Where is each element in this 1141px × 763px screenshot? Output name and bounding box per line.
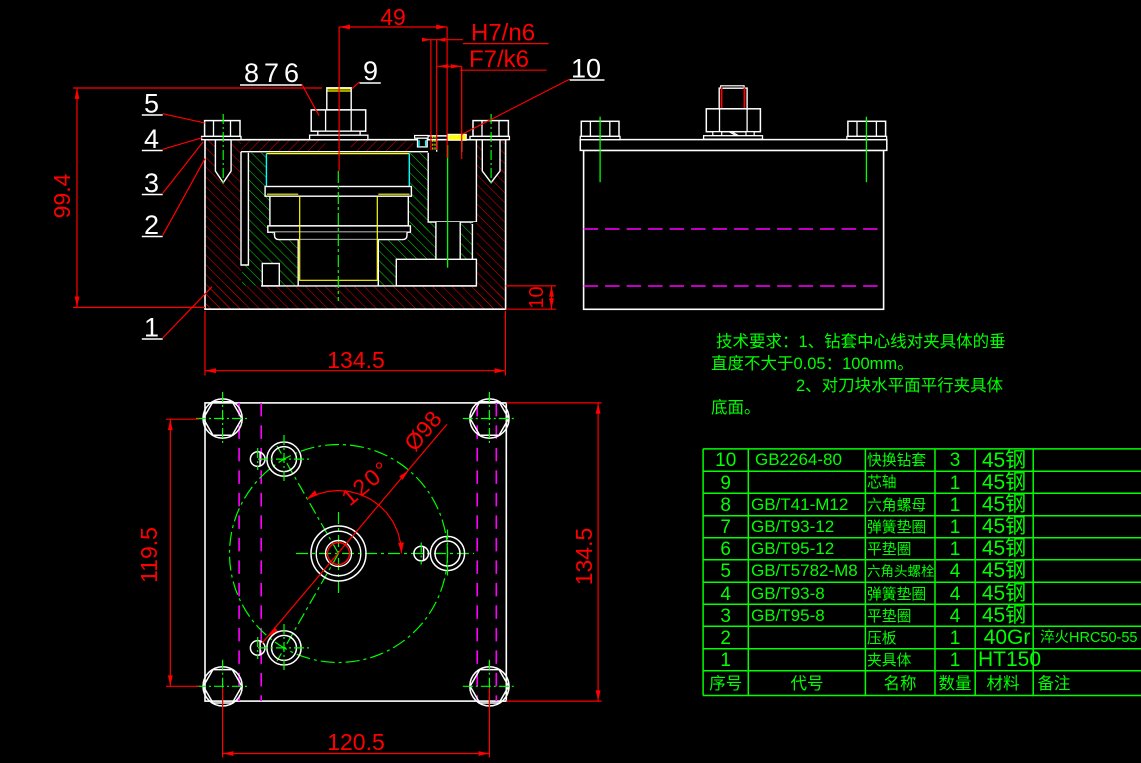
svg-text:4: 4 [950, 606, 961, 627]
svg-text:技术要求：1、钻套中心线对夹具体的垂: 技术要求：1、钻套中心线对夹具体的垂 [716, 332, 1006, 351]
svg-text:45钢: 45钢 [982, 471, 1026, 494]
svg-text:材料: 材料 [987, 674, 1020, 693]
svg-text:10: 10 [526, 286, 548, 308]
svg-text:GB/T5782-M8: GB/T5782-M8 [751, 561, 858, 580]
svg-text:名称: 名称 [884, 674, 917, 693]
svg-text:弹簧垫圈: 弹簧垫圈 [867, 586, 926, 603]
svg-text:芯轴: 芯轴 [867, 474, 897, 491]
svg-text:134.5: 134.5 [327, 347, 385, 373]
svg-text:45钢: 45钢 [982, 537, 1026, 560]
svg-text:45钢: 45钢 [982, 515, 1026, 538]
svg-text:9: 9 [720, 473, 731, 494]
svg-text:数量: 数量 [939, 674, 972, 693]
svg-text:底面。: 底面。 [711, 398, 761, 417]
svg-text:平垫圈: 平垫圈 [867, 608, 911, 625]
svg-text:876: 876 [244, 58, 304, 88]
svg-text:GB2264-80: GB2264-80 [755, 450, 842, 469]
svg-text:1: 1 [950, 517, 961, 538]
svg-text:六角头螺栓: 六角头螺栓 [867, 564, 935, 579]
svg-text:快换钻套: 快换钻套 [867, 452, 926, 469]
svg-text:代号: 代号 [791, 674, 824, 693]
svg-text:GB/T95-8: GB/T95-8 [751, 606, 825, 625]
svg-text:1: 1 [950, 628, 961, 649]
svg-text:120.5: 120.5 [327, 729, 385, 755]
svg-text:弹簧垫圈: 弹簧垫圈 [867, 519, 926, 536]
svg-text:45钢: 45钢 [982, 493, 1026, 516]
svg-text:3: 3 [144, 168, 159, 198]
svg-text:1: 1 [950, 650, 961, 671]
svg-text:夹具体: 夹具体 [867, 652, 912, 669]
svg-text:3: 3 [720, 606, 731, 627]
svg-text:7: 7 [720, 517, 731, 538]
svg-text:134.5: 134.5 [571, 528, 597, 586]
svg-text:H7/n6: H7/n6 [471, 20, 535, 47]
svg-text:45钢: 45钢 [982, 449, 1026, 472]
svg-text:6: 6 [720, 539, 731, 560]
svg-text:8: 8 [720, 495, 731, 516]
svg-text:45钢: 45钢 [982, 604, 1026, 627]
svg-text:备注: 备注 [1038, 674, 1071, 693]
svg-text:序号: 序号 [709, 674, 742, 693]
svg-text:压板: 压板 [867, 629, 897, 647]
svg-text:45钢: 45钢 [982, 582, 1026, 605]
svg-text:F7/k6: F7/k6 [469, 46, 529, 73]
svg-text:1: 1 [950, 495, 961, 516]
svg-text:GB/T41-M12: GB/T41-M12 [751, 495, 848, 514]
svg-text:4: 4 [950, 584, 961, 605]
svg-text:1: 1 [950, 473, 961, 494]
svg-text:4: 4 [950, 561, 961, 582]
svg-text:10: 10 [571, 54, 601, 84]
svg-text:1: 1 [950, 539, 961, 560]
svg-text:六角螺母: 六角螺母 [867, 497, 926, 514]
svg-text:2: 2 [144, 210, 159, 240]
svg-text:99.4: 99.4 [49, 173, 75, 218]
svg-text:GB/T95-12: GB/T95-12 [751, 539, 834, 558]
svg-text:平垫圈: 平垫圈 [867, 541, 911, 558]
svg-text:淬火HRC50-55: 淬火HRC50-55 [1040, 629, 1138, 646]
svg-text:4: 4 [144, 124, 159, 154]
svg-text:3: 3 [950, 450, 961, 471]
svg-text:直度不大于0.05：100mm。: 直度不大于0.05：100mm。 [711, 354, 914, 373]
svg-text:5: 5 [144, 88, 159, 118]
svg-text:10: 10 [715, 450, 736, 471]
svg-text:GB/T93-8: GB/T93-8 [751, 584, 825, 603]
svg-text:4: 4 [720, 584, 731, 605]
svg-text:1: 1 [144, 313, 159, 343]
svg-text:HT150: HT150 [978, 648, 1041, 671]
svg-text:GB/T93-12: GB/T93-12 [751, 517, 834, 536]
svg-text:2、对刀块水平面平行夹具体: 2、对刀块水平面平行夹具体 [796, 376, 1004, 395]
svg-text:49: 49 [380, 4, 406, 30]
svg-text:9: 9 [363, 56, 378, 86]
svg-text:2: 2 [720, 628, 731, 649]
svg-text:119.5: 119.5 [136, 527, 162, 583]
svg-text:45钢: 45钢 [982, 559, 1026, 582]
svg-text:5: 5 [720, 561, 731, 582]
svg-text:1: 1 [720, 650, 731, 671]
svg-text:40Gr: 40Gr [984, 626, 1031, 649]
